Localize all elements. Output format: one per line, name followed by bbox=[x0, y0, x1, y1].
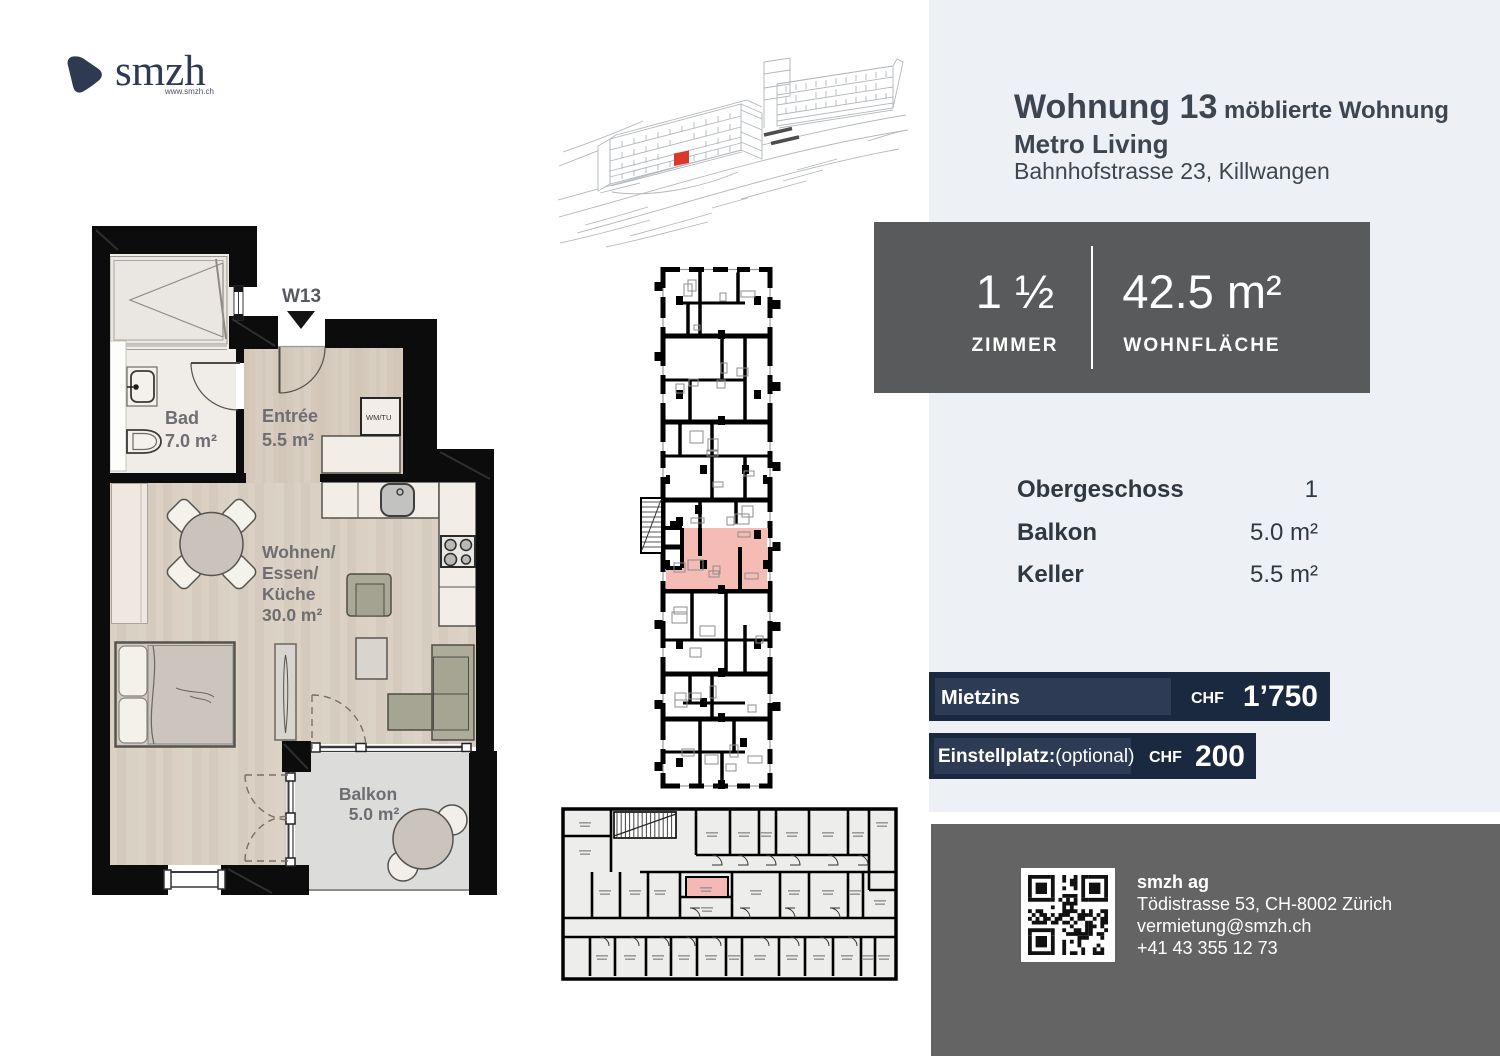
svg-text:Wohnen/: Wohnen/ bbox=[262, 542, 336, 562]
svg-text:WM/TU: WM/TU bbox=[366, 413, 391, 422]
svg-text:Bad: Bad bbox=[165, 408, 199, 428]
svg-text:Entrée: Entrée bbox=[262, 406, 318, 426]
svg-text:W13: W13 bbox=[282, 286, 321, 307]
svg-text:7.0 m²: 7.0 m² bbox=[165, 431, 217, 451]
svg-text:30.0 m²: 30.0 m² bbox=[262, 605, 322, 625]
svg-text:Küche: Küche bbox=[262, 584, 316, 604]
svg-text:5.5 m²: 5.5 m² bbox=[262, 430, 314, 450]
svg-text:Essen/: Essen/ bbox=[262, 563, 319, 583]
svg-text:Balkon: Balkon bbox=[339, 784, 397, 804]
svg-text:5.0 m²: 5.0 m² bbox=[349, 804, 400, 824]
